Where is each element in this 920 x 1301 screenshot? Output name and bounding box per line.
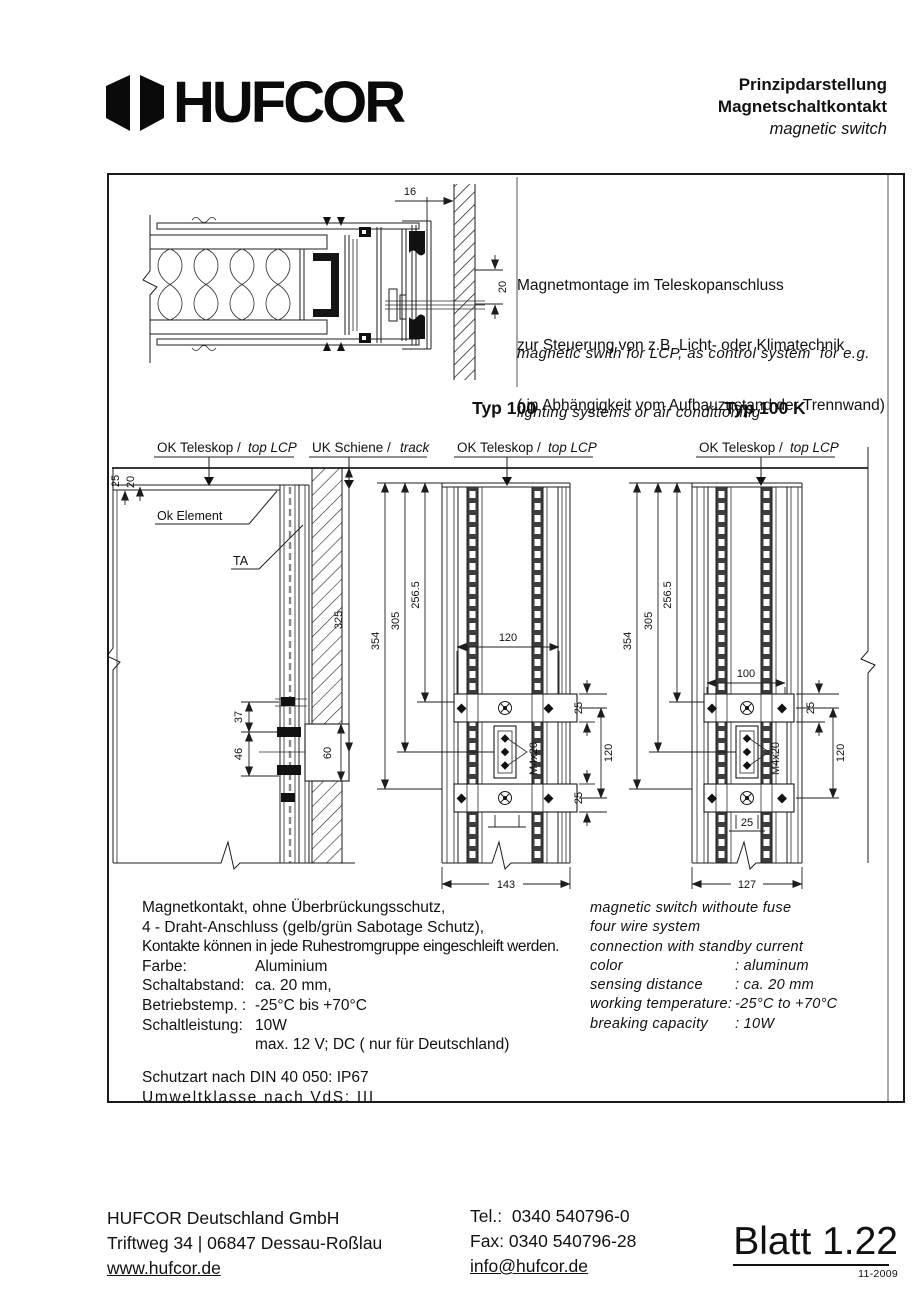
phone-number: Tel.: 0340 540796-0 [470,1204,636,1229]
spec-value: : 10W [735,1015,774,1034]
right-wall-line [861,447,875,863]
footer-contact-block: Tel.: 0340 540796-0 Fax: 0340 540796-28 … [470,1204,636,1279]
spec-value: max. 12 V; DC ( nur für Deutschland) [255,1035,509,1055]
dim-label-100: 100 [737,668,755,680]
intro-en-line1: magnetic swith for LCP, as control syste… [517,344,870,364]
callout-ok-teleskop-1: OK Teleskop / [157,440,241,455]
spec-row: sensing distance : ca. 20 mm [590,976,900,995]
spec-label: color [590,957,735,976]
dim-label-2565-m: 256.5 [410,581,422,609]
company-address: Triftweg 34 | 06847 Dessau-Roßlau [107,1231,382,1256]
dim-label-305-m: 305 [390,612,402,630]
dim-label-120-top: 120 [499,632,517,644]
specs-en-line2: four wire system [590,918,900,937]
title-line-2: Magnetschaltkontakt [718,96,887,118]
schutzart-line: Schutzart nach DIN 40 050: IP67 [142,1068,375,1088]
intro-en-line2: lighting systems or air conditioning [517,403,870,423]
hufcor-logo: HUFCOR [103,72,403,134]
spec-label: Schaltabstand: [142,976,255,996]
insulation-pattern [158,249,290,320]
dim-label-120-m: 120 [603,744,615,762]
dim-label-25-top: 25 [110,475,122,487]
dim-label-354-m: 354 [370,632,382,650]
dim-label-25-m2: 25 [573,792,585,804]
spec-row: Schaltabstand: ca. 20 mm, [142,976,602,996]
sheet-rule [733,1264,889,1266]
spec-value: -25°C to +70°C [735,995,837,1014]
title-line-1: Prinzipdarstellung [718,74,887,96]
spec-row: Betriebstemp. : -25°C bis +70°C [142,996,602,1016]
dim-label-46: 46 [233,748,245,760]
track-hatch [312,468,342,863]
footer-company-block: HUFCOR Deutschland GmbH Triftweg 34 | 06… [107,1206,382,1281]
wall-hatch [454,184,475,380]
logo-text: HUFCOR [173,74,403,132]
dim-label-m4x20-r: M4x20 [770,742,782,775]
spec-value: : aluminum [735,957,809,976]
spec-value: -25°C bis +70°C [255,996,367,1016]
dim-label-20: 20 [497,281,509,293]
dim-label-25-m1: 25 [573,702,585,714]
spec-row: max. 12 V; DC ( nur für Deutschland) [142,1035,602,1055]
label-ok-element: Ok Element [157,509,223,523]
spec-label: Schaltleistung: [142,1016,255,1036]
dim-label-143: 143 [497,879,515,891]
label-ta: TA [233,554,249,568]
sheet-date: 11-2009 [733,1268,898,1280]
spec-value: : ca. 20 mm [735,976,814,995]
spec-value: Aluminium [255,957,327,977]
fax-number: Fax: 0340 540796-28 [470,1229,636,1254]
spec-row: working temperature: -25°C to +70°C [590,995,900,1014]
specs-de-line1: Magnetkontakt, ohne Überbrückungsschutz, [142,898,602,918]
spec-row: Schaltleistung: 10W [142,1016,602,1036]
elevation-left: 25 20 Ok Element TA 60 [109,468,355,869]
elevation-typ100: 143 256.5 305 354 120 [370,483,615,891]
sheet-number-block: Blatt 1.22 11-2009 [733,1222,898,1280]
sheet-number: Blatt 1.22 [733,1222,898,1262]
cross-section-drawing: 16 20 [143,184,509,380]
hufcor-logo-icon [103,72,167,134]
specs-english: magnetic switch withoute fuse four wire … [590,899,900,1034]
email-link[interactable]: info@hufcor.de [470,1254,636,1279]
spec-label: Farbe: [142,957,255,977]
dim-label-m4x20-m: M4x20 [528,742,540,775]
spec-label: working temperature: [590,995,735,1014]
elevation-typ100k: 127 256.5 305 354 100 [622,483,847,891]
spec-row: breaking capacity : 10W [590,1015,900,1034]
callout-track: track [400,440,431,455]
spec-row: color : aluminum [590,957,900,976]
callout-top-lcp-1: top LCP [248,440,297,455]
specs-german-extra: Schutzart nach DIN 40 050: IP67 Umweltkl… [142,1068,375,1107]
specs-de-line2: 4 - Draht-Anschluss (gelb/grün Sabotage … [142,918,602,938]
title-block: Prinzipdarstellung Magnetschaltkontakt m… [718,74,887,140]
dim-label-20-top: 20 [125,476,137,488]
dim-label-305-r: 305 [643,612,655,630]
dim-label-25-r: 25 [805,702,817,714]
spec-label [142,1035,255,1055]
website-link[interactable]: www.hufcor.de [107,1256,382,1281]
specs-en-line3: connection with standby current [590,938,900,957]
spec-value: ca. 20 mm, [255,976,332,996]
dim-label-354-r: 354 [622,632,634,650]
company-name: HUFCOR Deutschland GmbH [107,1206,382,1231]
title-line-3: magnetic switch [718,118,887,140]
spec-label: breaking capacity [590,1015,735,1034]
callout-uk-schiene: UK Schiene / [312,440,391,455]
intro-de-line1: Magnetmontage im Teleskopanschluss [517,276,885,296]
spec-value: 10W [255,1016,287,1036]
spec-row: Farbe: Aluminium [142,957,602,977]
specs-de-line3: Kontakte können in jede Ruhestromgruppe … [142,937,602,957]
dim-label-25-bracket: 25 [741,817,753,829]
spec-label: sensing distance [590,976,735,995]
specs-en-line1: magnetic switch withoute fuse [590,899,900,918]
spec-label: Betriebstemp. : [142,996,255,1016]
intro-english: magnetic swith for LCP, as control syste… [517,305,870,461]
datasheet-page: HUFCOR Prinzipdarstellung Magnetschaltko… [0,0,920,1301]
umweltklasse-line: Umweltklasse nach VdS: III [142,1088,375,1108]
specs-german: Magnetkontakt, ohne Überbrückungsschutz,… [142,898,602,1055]
dim-label-37: 37 [233,711,245,723]
dim-label-2565-r: 256.5 [662,581,674,609]
dim-label-127: 127 [738,879,756,891]
dim-label-60: 60 [322,747,334,759]
dim-label-16: 16 [404,186,416,198]
dim-label-120-r: 120 [835,744,847,762]
dim-label-325: 325 [333,611,345,629]
